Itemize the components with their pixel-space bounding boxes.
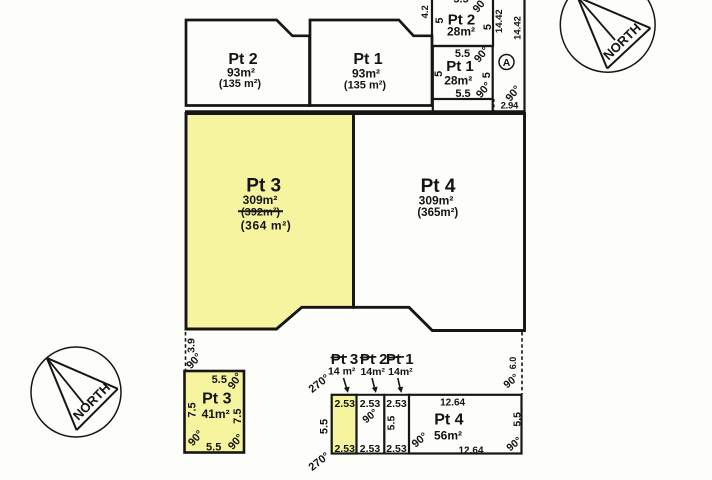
svg-text:A: A [503, 57, 511, 69]
svg-text:5.5: 5.5 [212, 374, 227, 386]
svg-text:5: 5 [482, 24, 494, 30]
svg-text:2.53: 2.53 [334, 443, 355, 455]
svg-text:3.9: 3.9 [186, 338, 198, 353]
svg-text:309m²: 309m² [419, 193, 454, 207]
svg-text:4.2: 4.2 [420, 5, 431, 18]
svg-text:7.5: 7.5 [232, 409, 244, 424]
svg-text:(135 m²): (135 m²) [344, 80, 387, 92]
svg-text:(365m²): (365m²) [417, 207, 458, 219]
svg-text:28m²: 28m² [447, 25, 475, 39]
svg-text:28m²: 28m² [444, 74, 472, 88]
svg-text:309m²: 309m² [243, 193, 278, 207]
svg-text:5: 5 [433, 71, 445, 77]
svg-text:90°: 90° [410, 430, 430, 450]
svg-text:14m²: 14m² [388, 366, 413, 378]
svg-text:90°: 90° [501, 372, 521, 391]
svg-text:93m²: 93m² [352, 67, 380, 81]
svg-text:14.42: 14.42 [494, 9, 505, 33]
svg-text:2.94: 2.94 [501, 101, 519, 112]
svg-text:2.53: 2.53 [334, 398, 355, 410]
svg-text:5.5: 5.5 [455, 88, 470, 100]
svg-text:90°: 90° [472, 45, 492, 65]
svg-text:12.64: 12.64 [440, 397, 465, 408]
svg-text:270°: 270° [307, 450, 332, 473]
svg-text:(364 m²): (364 m²) [241, 218, 292, 232]
svg-text:56m²: 56m² [434, 429, 462, 443]
svg-text:14m²: 14m² [360, 366, 385, 378]
svg-text:12.64: 12.64 [458, 445, 483, 456]
svg-text:Pt 4: Pt 4 [434, 411, 463, 428]
svg-text:NORTH: NORTH [70, 380, 113, 423]
svg-text:7.5: 7.5 [186, 402, 198, 417]
svg-text:Pt 1: Pt 1 [446, 58, 474, 75]
svg-text:2.53: 2.53 [386, 398, 407, 410]
svg-text:41m²: 41m² [202, 407, 230, 421]
svg-text:90°: 90° [184, 351, 204, 371]
svg-text:5.5: 5.5 [386, 416, 398, 431]
svg-text:6.0: 6.0 [508, 357, 518, 370]
svg-text:5: 5 [434, 17, 446, 23]
svg-text:5.5: 5.5 [453, 0, 468, 6]
svg-text:5.5: 5.5 [319, 419, 331, 434]
svg-text:Pt 1: Pt 1 [353, 51, 382, 68]
svg-text:Pt 3: Pt 3 [202, 390, 231, 407]
svg-text:5.5: 5.5 [511, 412, 523, 427]
svg-text:(135 m²): (135 m²) [219, 78, 262, 90]
svg-text:90°: 90° [474, 80, 494, 100]
svg-text:14.42: 14.42 [513, 16, 524, 40]
svg-text:14 m²: 14 m² [328, 366, 356, 378]
svg-text:5: 5 [481, 72, 493, 78]
svg-text:2.53: 2.53 [360, 443, 381, 455]
svg-text:2.53: 2.53 [386, 443, 407, 455]
svg-text:5.5: 5.5 [206, 442, 221, 454]
